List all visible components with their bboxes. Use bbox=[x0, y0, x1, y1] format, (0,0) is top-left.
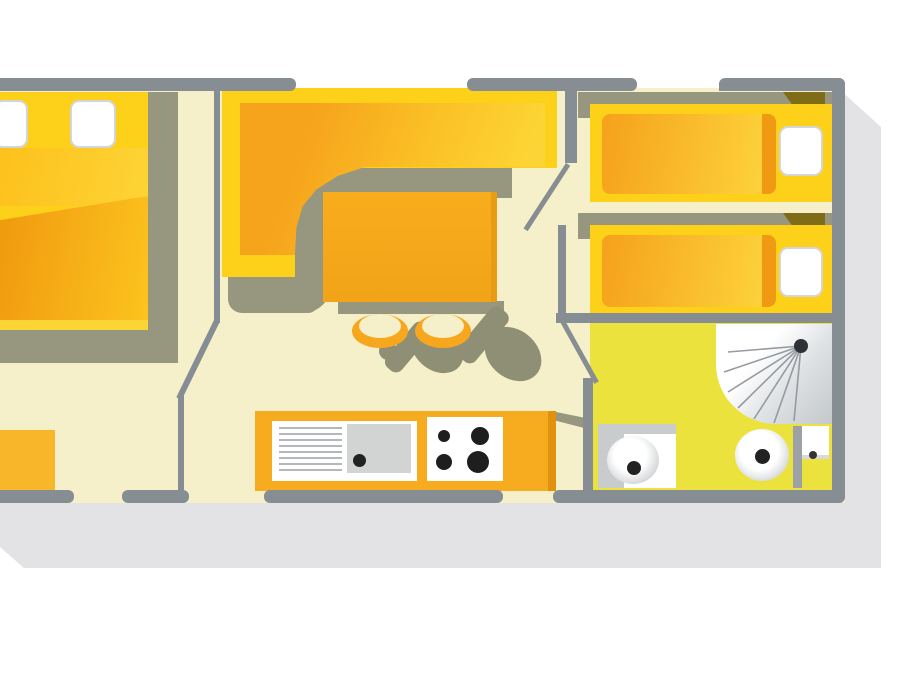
hob-burner bbox=[467, 451, 489, 473]
partition-wall bbox=[178, 394, 184, 494]
sink-drain bbox=[353, 454, 366, 467]
bathroom-wall bbox=[583, 378, 593, 496]
double-bed-shadow bbox=[0, 330, 178, 363]
toilet-divider-wall bbox=[793, 426, 802, 488]
sofa-shadow bbox=[228, 274, 318, 313]
chair-seat-cutout bbox=[422, 314, 464, 338]
single-bed-mattress bbox=[602, 235, 776, 307]
floor-plan-canvas bbox=[0, 0, 900, 675]
toilet-drain bbox=[755, 449, 770, 464]
exterior-wall-bottom bbox=[553, 490, 845, 503]
double-bed-shadow bbox=[148, 92, 178, 363]
hob-burner bbox=[471, 427, 489, 445]
exterior-wall-bottom bbox=[122, 490, 189, 503]
shower-tray bbox=[716, 324, 832, 424]
duvet bbox=[0, 148, 148, 206]
hob-unit bbox=[427, 417, 503, 481]
nightstand bbox=[0, 430, 55, 490]
flush-button bbox=[809, 451, 817, 459]
bedroom-bathroom-wall bbox=[556, 313, 834, 323]
shower-spray-icon bbox=[716, 324, 832, 424]
dining-table bbox=[323, 192, 497, 302]
pillow bbox=[70, 100, 116, 148]
pillow bbox=[779, 247, 823, 297]
corridor-wall bbox=[565, 85, 577, 163]
exterior-wall-top bbox=[467, 78, 637, 91]
partition-wall bbox=[214, 85, 220, 323]
exterior-wall-right bbox=[832, 78, 845, 503]
drainer-board bbox=[279, 427, 342, 475]
corridor-wall bbox=[558, 225, 566, 320]
exterior-wall-bottom bbox=[0, 490, 74, 503]
exterior-wall-top bbox=[0, 78, 296, 91]
single-bed-mattress bbox=[602, 114, 776, 194]
pillow bbox=[0, 100, 28, 148]
hob-burner bbox=[438, 430, 450, 442]
duvet-edge bbox=[0, 320, 148, 330]
kitchen-counter-edge bbox=[548, 411, 556, 491]
exterior-wall-top bbox=[719, 78, 845, 91]
table-shadow bbox=[338, 301, 504, 314]
chair-seat-cutout bbox=[359, 314, 401, 338]
exterior-wall-bottom bbox=[264, 490, 503, 503]
pillow bbox=[779, 126, 823, 176]
washbasin-drain bbox=[627, 461, 641, 475]
washbasin bbox=[607, 436, 659, 484]
hob-burner bbox=[436, 454, 452, 470]
